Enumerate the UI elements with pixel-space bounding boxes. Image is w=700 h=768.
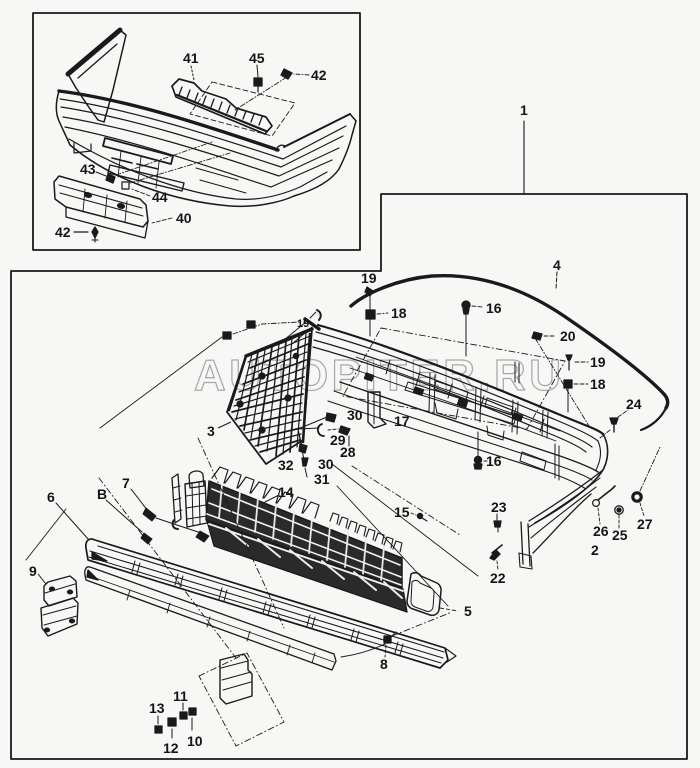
svg-text:22: 22 xyxy=(490,570,506,586)
svg-text:16: 16 xyxy=(486,300,502,316)
svg-text:19: 19 xyxy=(361,270,377,286)
svg-text:43: 43 xyxy=(80,161,96,177)
svg-text:27: 27 xyxy=(637,516,653,532)
svg-text:7: 7 xyxy=(122,475,130,491)
svg-text:11: 11 xyxy=(173,688,188,704)
svg-text:30: 30 xyxy=(347,407,363,423)
svg-text:23: 23 xyxy=(491,499,507,515)
svg-text:45: 45 xyxy=(249,50,265,66)
svg-text:17: 17 xyxy=(394,413,410,429)
svg-text:30: 30 xyxy=(318,456,334,472)
svg-text:18: 18 xyxy=(590,376,606,392)
svg-text:16: 16 xyxy=(486,453,502,469)
svg-text:28: 28 xyxy=(340,444,356,460)
svg-text:8: 8 xyxy=(380,656,388,672)
svg-text:2: 2 xyxy=(591,542,599,558)
svg-text:B: B xyxy=(97,486,107,502)
svg-text:1: 1 xyxy=(520,102,528,118)
svg-text:13: 13 xyxy=(149,700,165,716)
svg-text:3: 3 xyxy=(207,423,215,439)
svg-text:4: 4 xyxy=(553,257,561,273)
svg-text:14: 14 xyxy=(278,484,294,500)
svg-text:44: 44 xyxy=(152,189,168,205)
svg-text:5: 5 xyxy=(464,603,472,619)
svg-text:41: 41 xyxy=(183,50,199,66)
svg-text:20: 20 xyxy=(560,328,576,344)
svg-text:42: 42 xyxy=(311,67,327,83)
svg-text:12: 12 xyxy=(163,740,179,756)
svg-text:19: 19 xyxy=(297,318,309,330)
svg-text:40: 40 xyxy=(176,210,192,226)
svg-text:26: 26 xyxy=(593,523,609,539)
svg-text:15: 15 xyxy=(394,504,410,520)
svg-text:18: 18 xyxy=(391,305,407,321)
svg-text:19: 19 xyxy=(590,354,606,370)
svg-text:32: 32 xyxy=(278,457,294,473)
svg-text:31: 31 xyxy=(314,471,330,487)
svg-text:10: 10 xyxy=(187,733,203,749)
svg-text:24: 24 xyxy=(626,396,642,412)
svg-text:9: 9 xyxy=(29,563,37,579)
svg-text:25: 25 xyxy=(612,527,628,543)
svg-text:6: 6 xyxy=(47,489,55,505)
svg-text:42: 42 xyxy=(55,224,71,240)
